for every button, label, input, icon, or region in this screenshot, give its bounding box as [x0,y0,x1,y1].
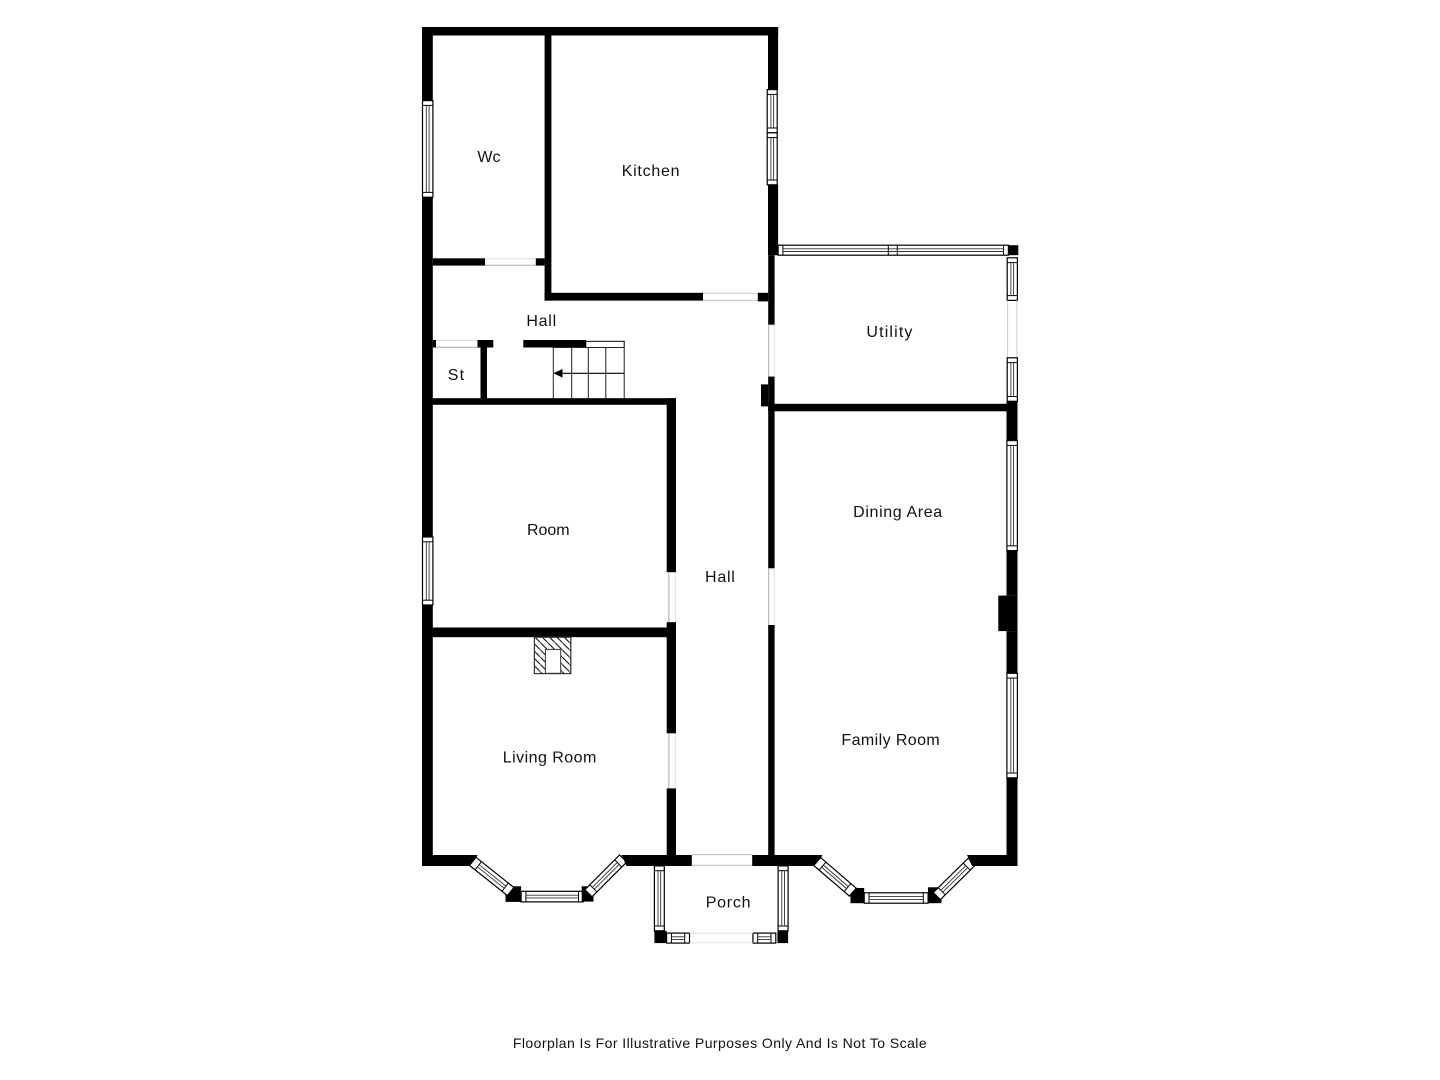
svg-text:Porch: Porch [706,894,752,911]
svg-text:Floorplan Is For Illustrative: Floorplan Is For Illustrative Purposes O… [513,1035,927,1051]
svg-text:Living Room: Living Room [503,750,597,767]
svg-text:Room: Room [527,522,570,539]
svg-text:Dining Area: Dining Area [853,504,943,521]
svg-text:Kitchen: Kitchen [622,163,680,180]
svg-text:Family Room: Family Room [841,732,940,749]
svg-text:Hall: Hall [705,569,736,586]
svg-text:Utility: Utility [866,324,913,341]
svg-text:Wc: Wc [477,149,500,166]
svg-text:St: St [448,367,466,384]
svg-text:Hall: Hall [526,313,557,330]
